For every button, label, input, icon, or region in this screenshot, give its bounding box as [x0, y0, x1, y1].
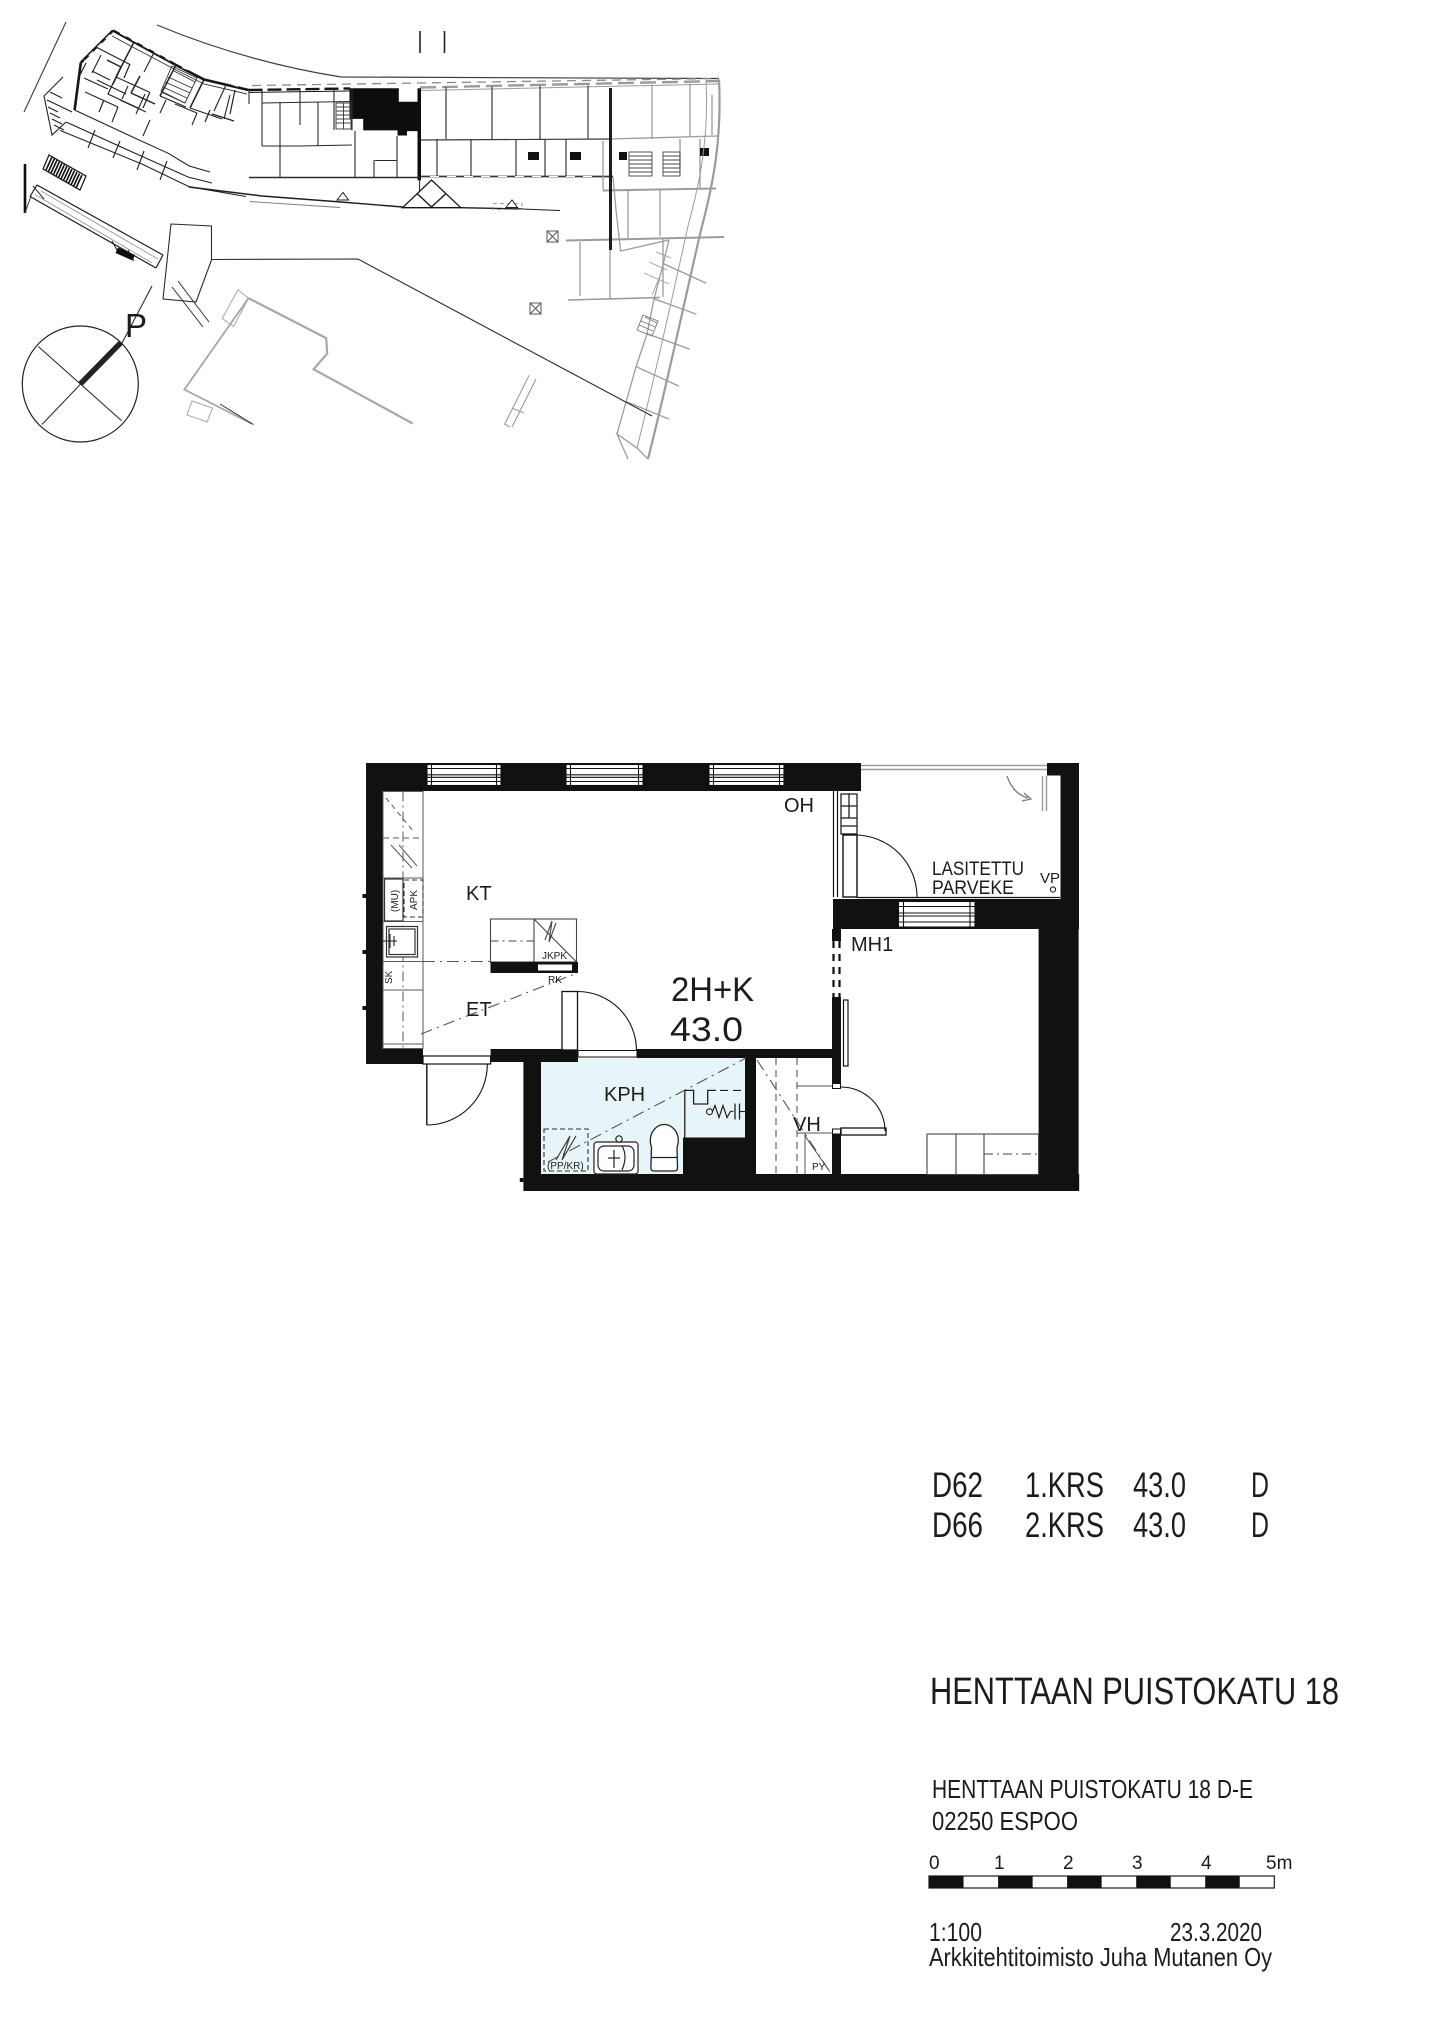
svg-text:HENTTAAN PUISTOKATU 18: HENTTAAN PUISTOKATU 18	[930, 1671, 1339, 1713]
svg-text:43.0: 43.0	[1133, 1506, 1186, 1545]
svg-text:VH: VH	[793, 1114, 821, 1136]
svg-text:SK: SK	[384, 970, 395, 984]
svg-text:5m: 5m	[1266, 1853, 1292, 1874]
svg-text:HENTTAAN PUISTOKATU 18 D-E: HENTTAAN PUISTOKATU 18 D-E	[932, 1774, 1253, 1804]
svg-text:MH1: MH1	[851, 934, 893, 956]
svg-text:02250 ESPOO: 02250 ESPOO	[932, 1806, 1078, 1836]
svg-text:RK: RK	[548, 975, 562, 986]
svg-text:ET: ET	[466, 999, 492, 1021]
svg-text:43.0: 43.0	[670, 1011, 743, 1049]
svg-text:P: P	[125, 307, 147, 344]
svg-text:VP: VP	[1040, 870, 1060, 887]
svg-text:D: D	[1251, 1506, 1269, 1545]
svg-text:(MU): (MU)	[390, 890, 401, 912]
svg-text:3: 3	[1132, 1853, 1143, 1874]
svg-text:2: 2	[1063, 1853, 1074, 1874]
svg-text:43.0: 43.0	[1133, 1466, 1186, 1505]
svg-text:2H+K: 2H+K	[671, 971, 754, 1009]
svg-text:PY: PY	[812, 1162, 826, 1173]
svg-text:D62: D62	[932, 1466, 983, 1505]
svg-text:2.KRS: 2.KRS	[1025, 1506, 1104, 1545]
svg-text:1: 1	[994, 1853, 1005, 1874]
svg-text:KPH: KPH	[604, 1084, 645, 1106]
svg-text:LASITETTU: LASITETTU	[932, 859, 1024, 880]
svg-text:D66: D66	[932, 1506, 983, 1545]
svg-text:0: 0	[929, 1853, 940, 1874]
svg-text:Arkkitehtitoimisto Juha Mutane: Arkkitehtitoimisto Juha Mutanen Oy	[929, 1942, 1272, 1972]
svg-text:D: D	[1251, 1466, 1269, 1505]
svg-text:JKPK: JKPK	[542, 951, 567, 962]
svg-text:OH: OH	[784, 795, 814, 817]
svg-text:PARVEKE: PARVEKE	[932, 878, 1014, 899]
svg-text:APK: APK	[409, 890, 420, 910]
svg-text:1.KRS: 1.KRS	[1025, 1466, 1104, 1505]
svg-text:4: 4	[1201, 1853, 1212, 1874]
svg-text:KT: KT	[466, 883, 492, 905]
svg-text:(PP/KR): (PP/KR)	[547, 1161, 584, 1172]
